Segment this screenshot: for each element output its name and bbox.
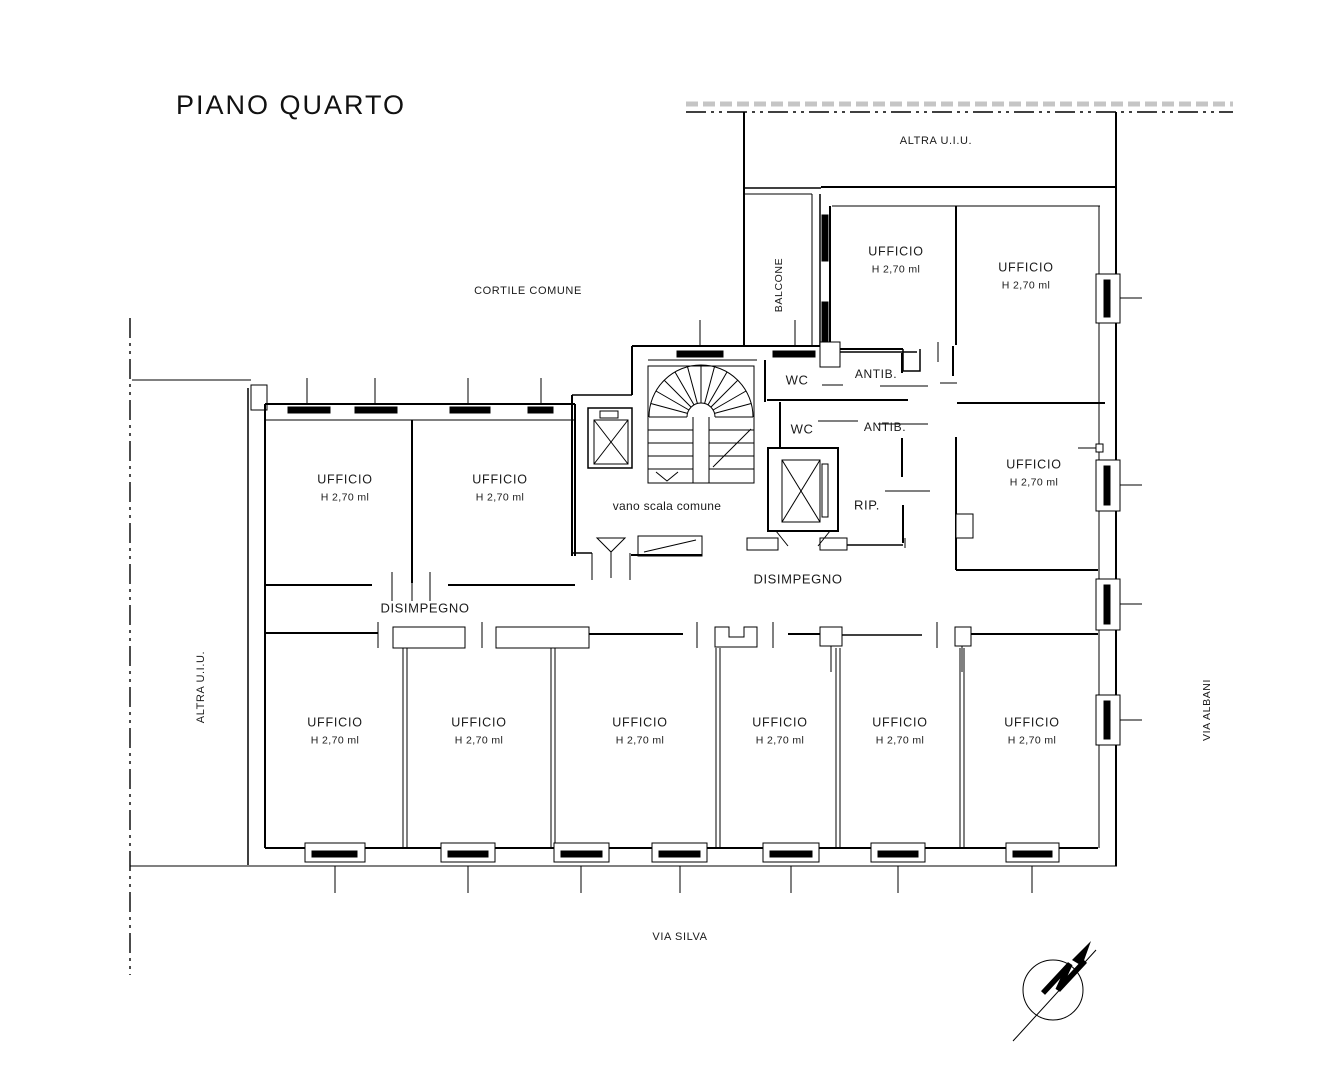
room-label-ufficio-bottom-5: UFFICIO H 2,70 ml: [872, 716, 928, 747]
thin-lines: [265, 194, 1142, 893]
room-label-ufficio-bottom-1: UFFICIO H 2,70 ml: [307, 716, 363, 747]
walls: [265, 112, 1117, 866]
elevator-icon-main: [768, 448, 838, 546]
room-label-ufficio-topleft-2: UFFICIO H 2,70 ml: [472, 473, 528, 504]
elevator-icon-small: [588, 408, 632, 468]
room-partitions: [403, 648, 964, 848]
label-disimpegno-main: DISIMPEGNO: [753, 572, 842, 587]
entry-symbols: [597, 536, 702, 578]
room-label-ufficio-right-middle: UFFICIO H 2,70 ml: [1006, 458, 1062, 489]
north-arrow-icon: [1013, 941, 1096, 1041]
label-antib-upper: ANTIB.: [855, 367, 897, 381]
plan-linework: [0, 0, 1321, 1085]
room-label-ufficio-bottom-2: UFFICIO H 2,70 ml: [451, 716, 507, 747]
label-vano-scala-comune: vano scala comune: [613, 499, 722, 513]
label-via-silva: VIA SILVA: [652, 931, 707, 943]
room-label-ufficio-topleft-1: UFFICIO H 2,70 ml: [317, 473, 373, 504]
label-altra-uiu-left: ALTRA U.I.U.: [195, 651, 207, 723]
label-wc-upper: WC: [786, 373, 809, 388]
room-label-ufficio-bottom-4: UFFICIO H 2,70 ml: [752, 716, 808, 747]
label-balcone: BALCONE: [773, 258, 785, 312]
room-label-ufficio-bottom-6: UFFICIO H 2,70 ml: [1004, 716, 1060, 747]
stair-icon: [648, 365, 754, 483]
label-antib-lower: ANTIB.: [864, 420, 906, 434]
label-cortile-comune: CORTILE COMUNE: [474, 285, 582, 297]
floor-plan-page: PIANO QUARTO ALTRA U.I.U. CORTILE COMUNE…: [0, 0, 1321, 1085]
room-label-ufficio-bottom-3: UFFICIO H 2,70 ml: [612, 716, 668, 747]
label-rip: RIP.: [854, 498, 880, 513]
room-label-ufficio-topright-2: UFFICIO H 2,70 ml: [998, 261, 1054, 292]
label-wc-lower: WC: [791, 422, 814, 437]
label-disimpegno-left: DISIMPEGNO: [380, 601, 469, 616]
label-altra-uiu-top: ALTRA U.I.U.: [900, 135, 972, 147]
label-via-albani: VIA ALBANI: [1201, 679, 1213, 741]
page-title: PIANO QUARTO: [176, 90, 406, 121]
room-label-ufficio-topright-1: UFFICIO H 2,70 ml: [868, 245, 924, 276]
